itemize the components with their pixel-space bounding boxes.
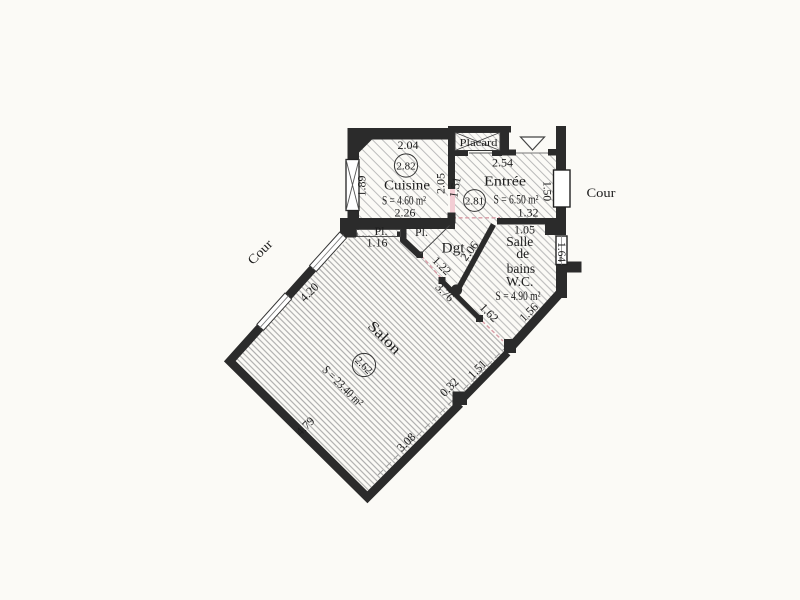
svg-text:2.05: 2.05: [434, 173, 448, 194]
svg-text:Placard: Placard: [460, 137, 499, 149]
svg-text:1.50: 1.50: [541, 181, 553, 201]
svg-text:2.82: 2.82: [396, 161, 415, 173]
svg-text:S = 4.90 m²: S = 4.90 m²: [496, 289, 541, 303]
svg-text:1.32: 1.32: [518, 206, 539, 220]
svg-text:Cuisine: Cuisine: [384, 179, 430, 194]
svg-text:Cour: Cour: [587, 185, 617, 200]
svg-text:1.64: 1.64: [555, 242, 567, 262]
svg-text:Entrée: Entrée: [484, 175, 526, 190]
svg-text:2.81: 2.81: [465, 196, 484, 208]
svg-text:2.54: 2.54: [492, 156, 513, 170]
svg-text:1.89: 1.89: [355, 176, 369, 197]
svg-text:W.C.: W.C.: [506, 274, 533, 289]
svg-text:1.16: 1.16: [367, 236, 388, 250]
svg-text:1.05: 1.05: [514, 223, 535, 237]
svg-text:Pl.: Pl.: [415, 225, 428, 239]
svg-text:2.04: 2.04: [398, 138, 419, 152]
svg-text:2.26: 2.26: [395, 206, 416, 220]
svg-text:de: de: [516, 246, 529, 261]
